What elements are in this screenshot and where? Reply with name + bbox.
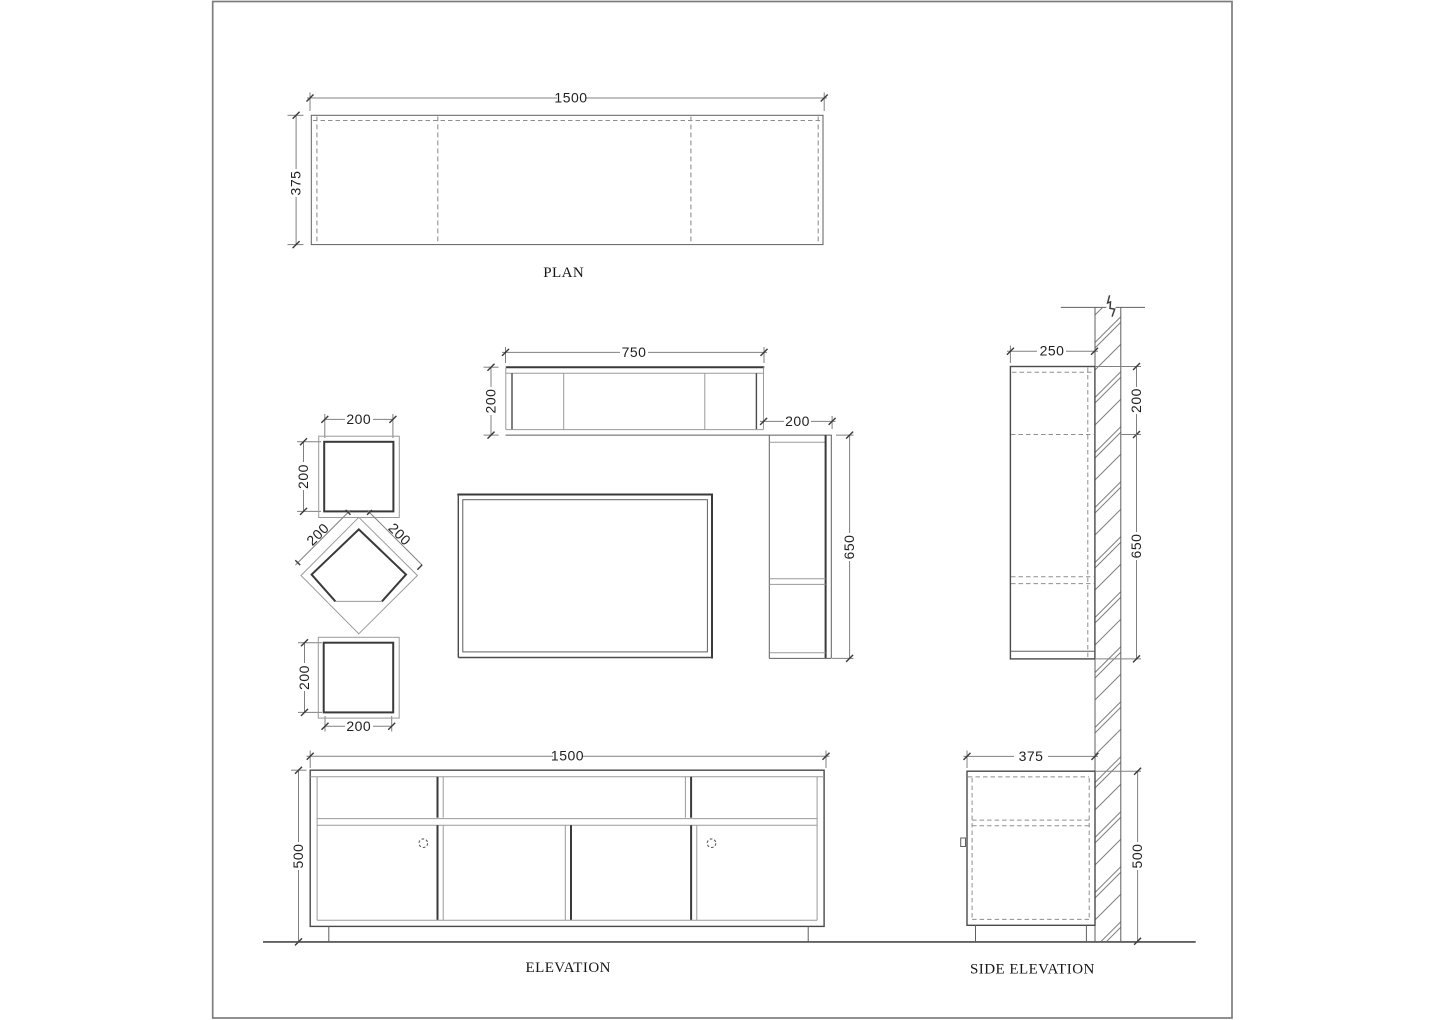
svg-text:650: 650 [841,535,857,560]
svg-text:500: 500 [1129,844,1145,869]
svg-text:200: 200 [296,665,312,690]
svg-text:750: 750 [622,344,647,360]
svg-text:SIDE ELEVATION: SIDE ELEVATION [970,962,1095,978]
svg-text:1500: 1500 [554,90,587,106]
svg-text:200: 200 [346,718,371,734]
svg-text:PLAN: PLAN [543,265,584,281]
svg-text:1500: 1500 [551,748,584,764]
svg-text:375: 375 [1019,748,1044,764]
svg-text:500: 500 [290,844,306,869]
svg-text:200: 200 [785,413,810,429]
svg-text:ELEVATION: ELEVATION [525,960,610,976]
svg-text:200: 200 [1128,388,1144,413]
svg-text:250: 250 [1040,343,1065,359]
svg-text:200: 200 [483,389,499,414]
svg-text:200: 200 [295,464,311,489]
svg-text:375: 375 [288,171,304,196]
svg-text:200: 200 [346,411,371,427]
svg-text:650: 650 [1128,534,1144,559]
